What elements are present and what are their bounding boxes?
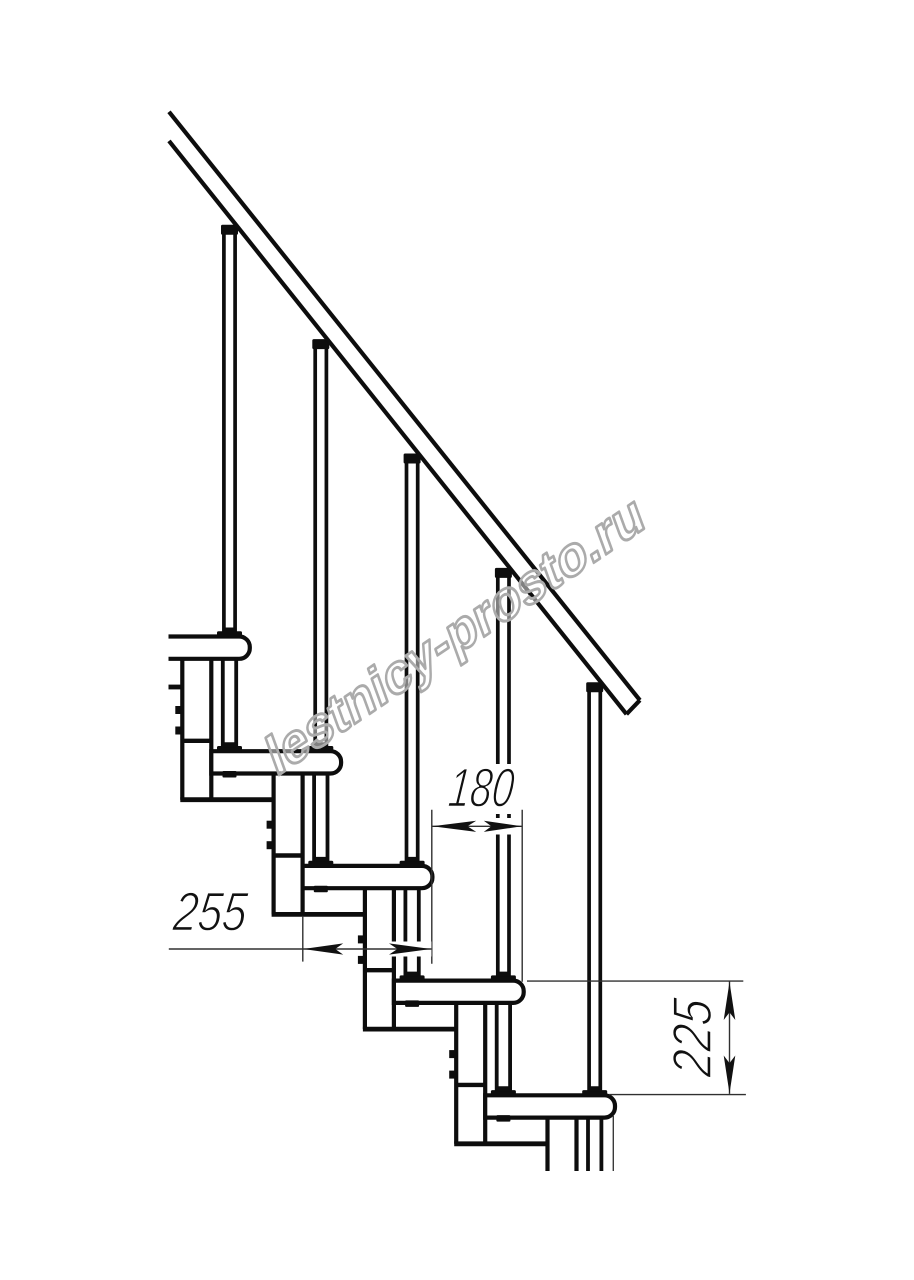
svg-text:225: 225 — [661, 995, 723, 1080]
svg-text:255: 255 — [170, 881, 251, 943]
svg-text:180: 180 — [446, 757, 518, 819]
